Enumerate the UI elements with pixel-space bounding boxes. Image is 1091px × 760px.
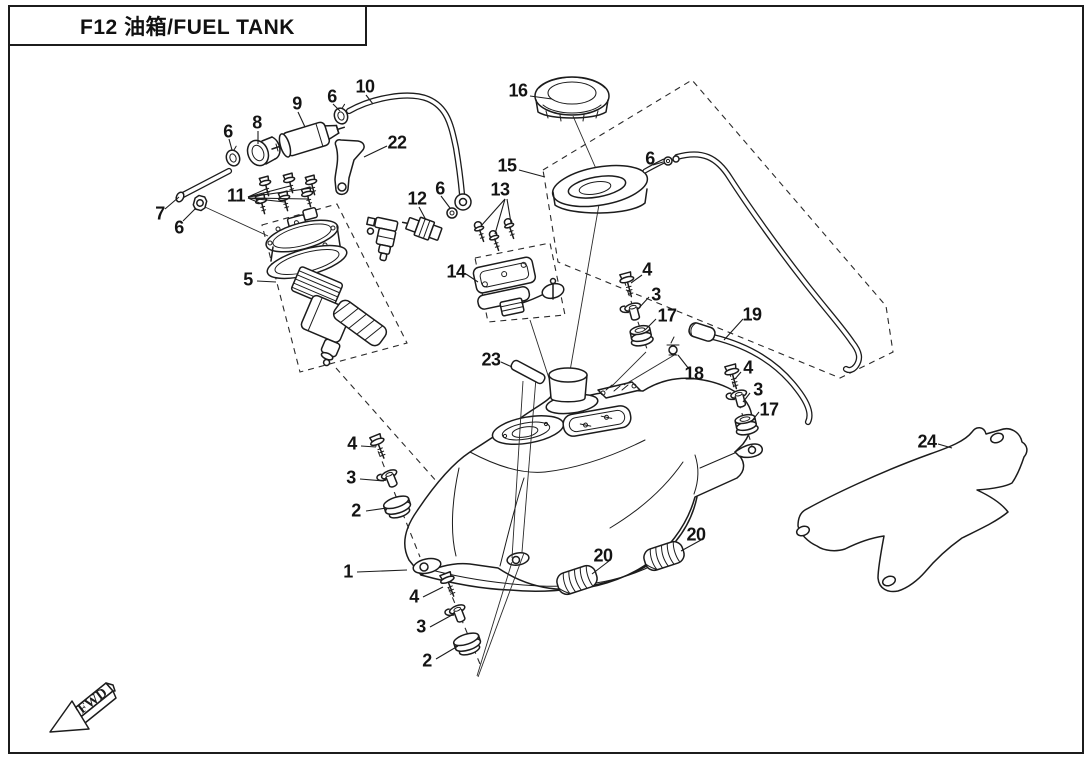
part-1-fuel-tank — [405, 368, 762, 591]
part-22-bracket — [335, 140, 364, 195]
part-16-fuel-cap — [535, 77, 609, 121]
part-15-filler-neck-ring — [549, 156, 679, 213]
part-17-grommet-right-upper — [628, 324, 654, 348]
part-6-clamp-b — [332, 104, 350, 125]
part-6-clamp-c — [447, 208, 457, 218]
part-23-strip — [510, 359, 546, 385]
part-4-bolt-right-upper — [618, 272, 638, 299]
part-8-sleeve — [244, 137, 280, 169]
hose-elbow-end — [455, 194, 471, 210]
parts-diagram: FWD — [0, 0, 1091, 760]
fuel-injector — [360, 215, 398, 261]
fwd-direction-arrow: FWD — [50, 683, 116, 732]
part-12-fuel-valve-fitting — [400, 212, 443, 243]
part-14-fuel-level-sensor — [472, 256, 565, 316]
part-10-fuel-hose — [349, 96, 462, 194]
page-title: F12 油箱/FUEL TANK — [80, 11, 295, 41]
part-3-bushing-right-upper — [620, 302, 644, 323]
part-24-protector-mat — [795, 428, 1027, 592]
part-3-bushing-upper-left — [376, 468, 401, 491]
title-box: F12 油箱/FUEL TANK — [8, 5, 367, 46]
part-18-clip — [667, 337, 679, 355]
part-2-mount-upper-left — [382, 494, 413, 521]
part-2-mount-lower — [452, 631, 483, 658]
diagram-page: FWD 161069862215613111267651443171918431… — [0, 0, 1091, 760]
part-4-bolt-lower — [439, 571, 461, 598]
part-3-bushing-lower — [444, 603, 469, 626]
part-6-clamp-a — [223, 146, 242, 168]
